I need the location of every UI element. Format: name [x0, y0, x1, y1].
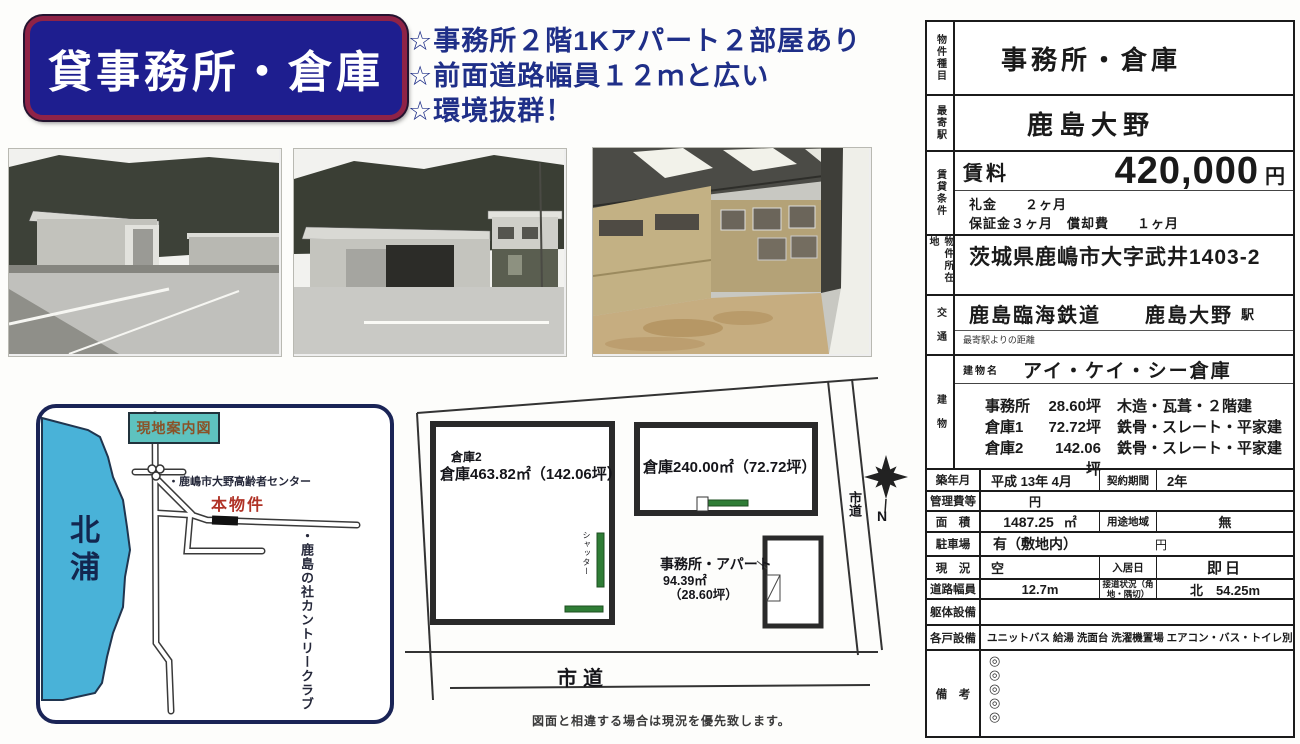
note-mark: ◎ [989, 654, 1293, 668]
deposit: 保証金３ヶ月 償却費 １ヶ月 [969, 214, 1283, 233]
notes-marks: ◎ ◎ ◎ ◎ ◎ [981, 651, 1293, 736]
note-mark: ◎ [989, 696, 1293, 710]
row-built-date: 築年月 平成 13年 4月 契約期間 2年 [927, 470, 1293, 492]
photo-interior [592, 147, 872, 357]
unit-equipment-value: ユニットバス 給湯 洗面台 洗濯機置場 エアコン・バス・トイレ別 [981, 626, 1293, 649]
shutter-side [597, 533, 604, 587]
road-bottom-label: 市道 [557, 662, 609, 691]
row-access: 交 通 鹿島臨海鉄道 鹿島大野 駅 最寄駅よりの距離 [927, 296, 1293, 356]
site-plan-drawing [405, 363, 915, 708]
map-title-box: 現地案内図 [128, 412, 220, 444]
property-data-sheet: 物件種目 事務所・倉庫 最寄駅 鹿島大野 賃貸条件 賃料 420,000 円 礼… [925, 20, 1295, 738]
row-label: 交 通 [927, 296, 955, 354]
nearest-station-value: 鹿島大野 [955, 96, 1293, 150]
row-structure-equipment: 躯体設備 [927, 600, 1293, 626]
parking-unit: 円 [1155, 536, 1167, 553]
rent-unit: 円 [1265, 160, 1285, 189]
row-management-fee: 管理費等 円 [927, 492, 1293, 512]
zoning-value: 無 [1157, 512, 1293, 531]
frontage-label: 接道状況（角地・隅切） [1099, 580, 1157, 598]
row-label: 物件所在地 [927, 236, 955, 294]
shutter-label: シャッター [581, 531, 592, 576]
title-banner: 貸事務所・倉庫 [25, 16, 407, 120]
row-area: 面 積 1487.25 ㎡ 用途地域 無 [927, 512, 1293, 533]
row-rent: 賃貸条件 賃料 420,000 円 礼金 ２ヶ月 保証金３ヶ月 償却費 １ヶ月 [927, 152, 1293, 236]
move-in-value: 即日 [1157, 557, 1293, 578]
move-in-label: 入居日 [1099, 557, 1157, 578]
row-label: 躯体設備 [927, 600, 981, 624]
row-label: 備 考 [927, 651, 981, 736]
building-name-value: アイ・ケイ・シー倉庫 [1023, 356, 1232, 383]
shutter-warehouse1 [708, 500, 748, 506]
area-value: 1487.25 [1003, 514, 1054, 530]
row-label: 最寄駅 [927, 96, 955, 150]
rent-conditions: 礼金 ２ヶ月 保証金３ヶ月 償却費 １ヶ月 [955, 191, 1293, 233]
poi-senior-center: ・鹿嶋市大野高齢者センター [168, 473, 311, 489]
note-mark: ◎ [989, 682, 1293, 696]
row-label: 現 況 [927, 557, 981, 578]
row-notes: 備 考 ◎ ◎ ◎ ◎ ◎ [927, 651, 1293, 736]
row-label: 築年月 [927, 470, 981, 490]
zoning-label: 用途地域 [1099, 512, 1157, 531]
row-label: 面 積 [927, 512, 981, 531]
rent-label: 賃料 [963, 157, 1009, 186]
highlight-line: ☆前面道路幅員１２ｍと広い [408, 59, 861, 94]
structure-equipment-value [981, 600, 1293, 624]
built-date-value: 平成 13年 4月 [981, 470, 1099, 490]
banner-title: 貸事務所・倉庫 [48, 36, 384, 100]
spec-office: 事務所 28.60坪 木造・瓦葺・２階建 [985, 396, 1293, 417]
highlights-list: ☆事務所２階1Kアパート２部屋あり ☆前面道路幅員１２ｍと広い ☆環境抜群！ [408, 24, 861, 129]
compass-icon [864, 455, 908, 513]
contract-label: 契約期間 [1099, 470, 1157, 490]
row-label: 管理費等 [927, 492, 981, 510]
second-building [189, 237, 279, 267]
area-unit: ㎡ [1064, 512, 1077, 531]
photo-exterior-front [293, 148, 567, 357]
property-label: 本物件 [211, 491, 265, 515]
photo-exterior-road-image [9, 149, 279, 354]
building-name-line: 建物名 アイ・ケイ・シー倉庫 [955, 356, 1293, 384]
building-name-label: 建物名 [963, 362, 999, 377]
left-wall [593, 186, 711, 316]
management-fee-value: 円 [981, 492, 1293, 510]
row-label: 各戸設備 [927, 626, 981, 649]
spec-warehouse1: 倉庫1 72.72坪 鉄骨・スレート・平家建 [985, 417, 1293, 438]
property-mark [212, 516, 238, 526]
property-type-value: 事務所・倉庫 [955, 22, 1293, 94]
row-location: 物件所在地 茨城県鹿嶋市大字武井1403-2 [927, 236, 1293, 296]
row-label: 建 物 [927, 356, 955, 468]
lake-label: 北浦 [59, 514, 103, 588]
row-status: 現 況 空 入居日 即日 [927, 557, 1293, 580]
contract-value: 2年 [1157, 470, 1293, 490]
key-money: 礼金 ２ヶ月 [969, 195, 1283, 214]
photo-exterior-front-image [294, 149, 564, 354]
row-label: 賃貸条件 [927, 152, 955, 234]
rent-line: 賃料 420,000 円 [955, 152, 1293, 191]
warehouse2-label: 倉庫463.82㎡（142.06坪） [440, 463, 622, 484]
highlight-line: ☆事務所２階1Kアパート２部屋あり [408, 24, 861, 59]
row-parking: 駐車場 有（敷地内） 円 [927, 533, 1293, 557]
poi-golf-club: ・鹿島の社カントリークラブ [297, 529, 316, 711]
row-label: 駐車場 [927, 533, 981, 555]
parking-value: 有（敷地内） [981, 534, 1077, 554]
highlight-line: ☆環境抜群！ [408, 94, 861, 129]
road-width-value: 12.7m [981, 580, 1099, 598]
location-value: 茨城県鹿嶋市大字武井1403-2 [955, 236, 1293, 294]
warehouse-opening [386, 245, 454, 287]
office-label-line3: （28.60坪） [669, 584, 738, 603]
row-label: 道路幅員 [927, 580, 981, 598]
note-mark: ◎ [989, 668, 1293, 682]
road [294, 287, 564, 354]
row-label: 物件種目 [927, 22, 955, 94]
access-line: 鹿島臨海鉄道 鹿島大野 駅 [955, 296, 1293, 331]
building-specs: 事務所 28.60坪 木造・瓦葺・２階建 倉庫1 72.72坪 鉄骨・スレート・… [955, 384, 1293, 480]
note-mark: ◎ [989, 710, 1293, 724]
access-railway-station: 鹿島臨海鉄道 鹿島大野 [969, 299, 1233, 328]
north-label: N [877, 508, 887, 524]
warehouse1-label: 倉庫240.00㎡（72.72坪） [643, 456, 816, 477]
rent-amount: 420,000 [1115, 150, 1259, 193]
row-nearest-station: 最寄駅 鹿島大野 [927, 96, 1293, 152]
row-property-type: 物件種目 事務所・倉庫 [927, 22, 1293, 96]
status-value: 空 [981, 557, 1099, 578]
shutter-bottom [565, 606, 603, 612]
row-building: 建 物 建物名 アイ・ケイ・シー倉庫 事務所 28.60坪 木造・瓦葺・２階建 … [927, 356, 1293, 470]
photo-interior-image [593, 148, 869, 354]
plan-caption: 図面と相違する場合は現況を優先致します。 [532, 712, 791, 729]
row-road-width: 道路幅員 12.7m 接道状況（角地・隅切） 北 54.25m [927, 580, 1293, 600]
row-unit-equipment: 各戸設備 ユニットバス 給湯 洗面台 洗濯機置場 エアコン・バス・トイレ別 [927, 626, 1293, 651]
site-plan: 倉庫2 倉庫463.82㎡（142.06坪） 倉庫240.00㎡（72.72坪）… [405, 363, 915, 708]
station-suffix: 駅 [1241, 304, 1254, 323]
frontage-value: 北 54.25m [1157, 580, 1293, 598]
location-map: 現地案内図 北浦 ・鹿嶋市大野高齢者センター 本物件 ・鹿島の社カントリークラブ [35, 403, 397, 727]
photo-exterior-road [8, 148, 282, 357]
road-right-label: 市道 [845, 491, 864, 517]
access-sub-label: 最寄駅よりの距離 [955, 331, 1293, 346]
